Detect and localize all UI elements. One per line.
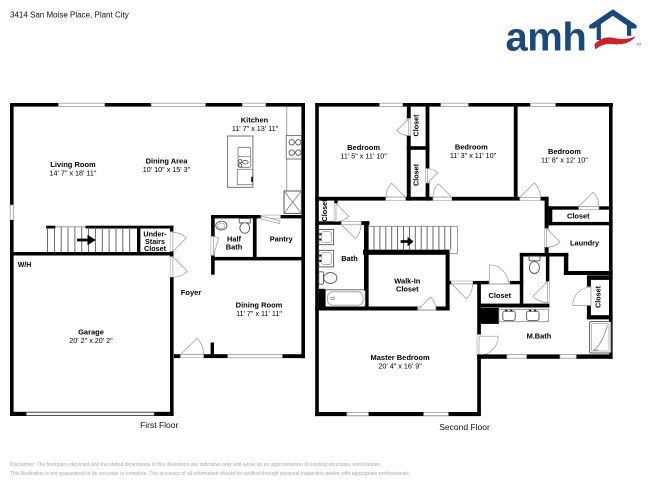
svg-text:Second Floor: Second Floor <box>439 422 490 432</box>
svg-text:W/H: W/H <box>18 262 32 269</box>
svg-text:11' 3" x 11' 10": 11' 3" x 11' 10" <box>450 151 497 160</box>
svg-text:TM: TM <box>636 43 641 47</box>
svg-text:20' 4" x 16' 9": 20' 4" x 16' 9" <box>378 362 422 371</box>
svg-text:Bath: Bath <box>226 243 243 252</box>
svg-text:Bath: Bath <box>341 254 358 263</box>
svg-text:11' 7" x 11' 11": 11' 7" x 11' 11" <box>236 309 282 318</box>
svg-text:This illustration is not guara: This illustration is not guaranteed to b… <box>10 471 410 477</box>
svg-text:Closet: Closet <box>593 285 602 308</box>
svg-text:20' 2" x 20' 2": 20' 2" x 20' 2" <box>69 336 113 345</box>
svg-text:3414 San Moise Place, Plant Ci: 3414 San Moise Place, Plant City <box>10 11 129 20</box>
svg-text:11' 5" x 11' 10": 11' 5" x 11' 10" <box>340 151 387 160</box>
svg-text:Laundry: Laundry <box>570 239 600 248</box>
svg-text:amh: amh <box>506 16 587 60</box>
svg-text:Closet: Closet <box>412 114 421 137</box>
svg-text:Foyer: Foyer <box>181 288 202 297</box>
svg-text:Closet: Closet <box>320 199 329 222</box>
svg-text:M.Bath: M.Bath <box>527 332 552 341</box>
svg-text:Closet: Closet <box>567 211 590 220</box>
svg-text:Pantry: Pantry <box>270 234 294 243</box>
svg-text:10' 10" x 15' 3": 10' 10" x 15' 3" <box>143 165 191 174</box>
svg-text:Closet: Closet <box>412 163 421 186</box>
svg-text:11' 8" x 12' 10": 11' 8" x 12' 10" <box>541 156 588 165</box>
svg-text:Closet: Closet <box>144 244 167 253</box>
svg-text:Closet: Closet <box>396 285 419 294</box>
svg-text:Disclaimer: The floorplans dep: Disclaimer: The floorplans depicted and … <box>10 462 382 468</box>
svg-text:Closet: Closet <box>489 291 512 300</box>
svg-text:First Floor: First Floor <box>140 420 178 430</box>
svg-text:14' 7" x 18' 11": 14' 7" x 18' 11" <box>50 169 97 178</box>
svg-text:11' 7" x 13' 11": 11' 7" x 13' 11" <box>232 124 279 133</box>
